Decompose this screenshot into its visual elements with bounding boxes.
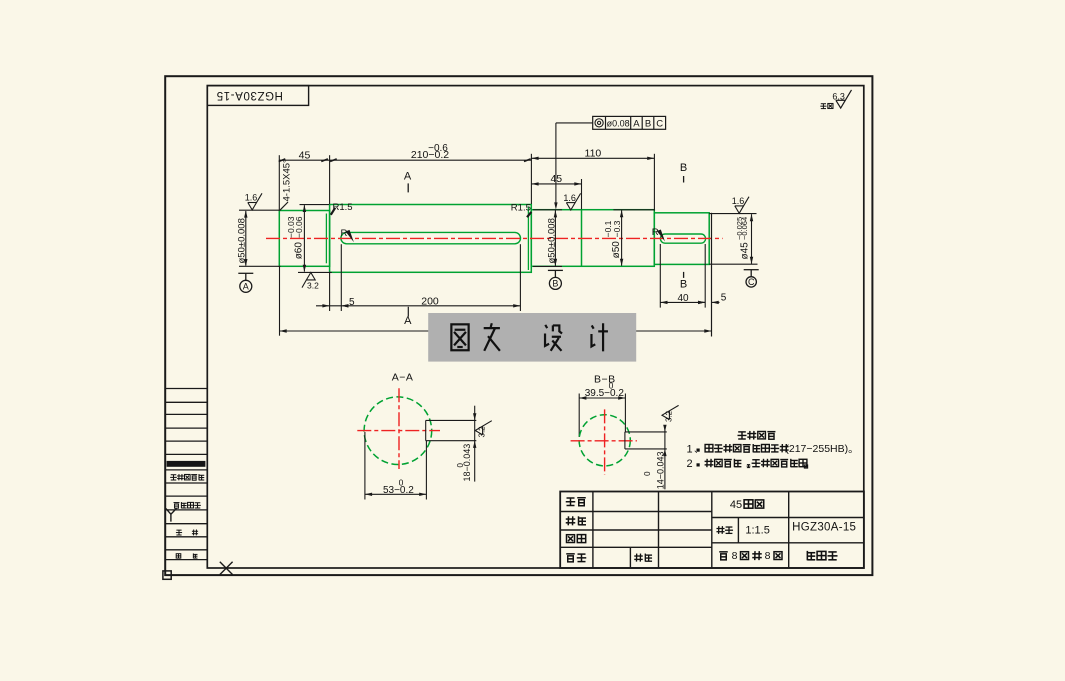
svg-text:1.6: 1.6 xyxy=(732,196,745,206)
svg-text:6.3: 6.3 xyxy=(832,91,845,101)
svg-text:−0.3: −0.3 xyxy=(612,220,622,237)
svg-text:A−A: A−A xyxy=(392,372,414,384)
svg-text:1.6: 1.6 xyxy=(245,193,258,203)
svg-text:45: 45 xyxy=(299,149,311,161)
svg-text:C: C xyxy=(748,277,755,287)
svg-text:(217−255HB)。: (217−255HB)。 xyxy=(785,443,858,455)
svg-text:110: 110 xyxy=(585,147,602,159)
svg-text:5: 5 xyxy=(721,293,727,304)
svg-text:4-1.5X45°: 4-1.5X45° xyxy=(281,159,292,202)
svg-text:3.2: 3.2 xyxy=(477,426,486,438)
svg-text:HGZ30A-15: HGZ30A-15 xyxy=(216,89,283,101)
svg-text:45: 45 xyxy=(730,499,742,511)
svg-text:ø45: ø45 xyxy=(740,242,751,260)
svg-text:−0.064: −0.064 xyxy=(740,217,749,240)
svg-text:B: B xyxy=(680,278,687,290)
svg-text:C: C xyxy=(656,119,663,130)
svg-text:ø50±0.008: ø50±0.008 xyxy=(546,218,557,263)
svg-text:R: R xyxy=(341,228,348,239)
svg-text:3.2: 3.2 xyxy=(664,410,673,422)
svg-text:ø0.08: ø0.08 xyxy=(607,118,630,128)
svg-text:8: 8 xyxy=(765,550,771,562)
svg-text:1.6: 1.6 xyxy=(563,193,576,203)
svg-text:14−0.043: 14−0.043 xyxy=(655,452,665,490)
svg-text:R1.5: R1.5 xyxy=(333,202,353,213)
svg-text:ø50±0.008: ø50±0.008 xyxy=(237,218,248,263)
svg-text:HGZ30A-15: HGZ30A-15 xyxy=(792,522,856,534)
svg-text:5: 5 xyxy=(349,297,355,308)
svg-text:ø50: ø50 xyxy=(611,241,622,259)
svg-text:53−0.2: 53−0.2 xyxy=(383,485,414,496)
svg-text:B: B xyxy=(680,162,687,174)
svg-text:B: B xyxy=(552,279,558,289)
svg-text:0: 0 xyxy=(643,471,652,476)
svg-text:0: 0 xyxy=(456,463,465,468)
svg-text:ø60: ø60 xyxy=(293,242,304,260)
svg-text:A: A xyxy=(404,315,412,327)
svg-text:8: 8 xyxy=(732,550,738,562)
svg-text:−0.06: −0.06 xyxy=(294,216,304,238)
svg-text:40: 40 xyxy=(677,293,689,304)
svg-text:A: A xyxy=(243,282,249,292)
svg-text:2: 2 xyxy=(686,458,692,470)
svg-text:1: 1 xyxy=(686,443,692,455)
svg-text:18−0.043: 18−0.043 xyxy=(462,444,472,482)
svg-text:A: A xyxy=(404,171,412,183)
svg-text:210−0.2: 210−0.2 xyxy=(411,149,449,161)
svg-text:3.2: 3.2 xyxy=(307,281,319,291)
svg-text:B: B xyxy=(645,119,651,130)
svg-text:R1.5: R1.5 xyxy=(511,203,531,214)
svg-text:200: 200 xyxy=(421,296,439,308)
svg-text:1:1.5: 1:1.5 xyxy=(745,525,769,537)
svg-text:R: R xyxy=(652,227,659,238)
svg-text:A: A xyxy=(633,119,640,130)
